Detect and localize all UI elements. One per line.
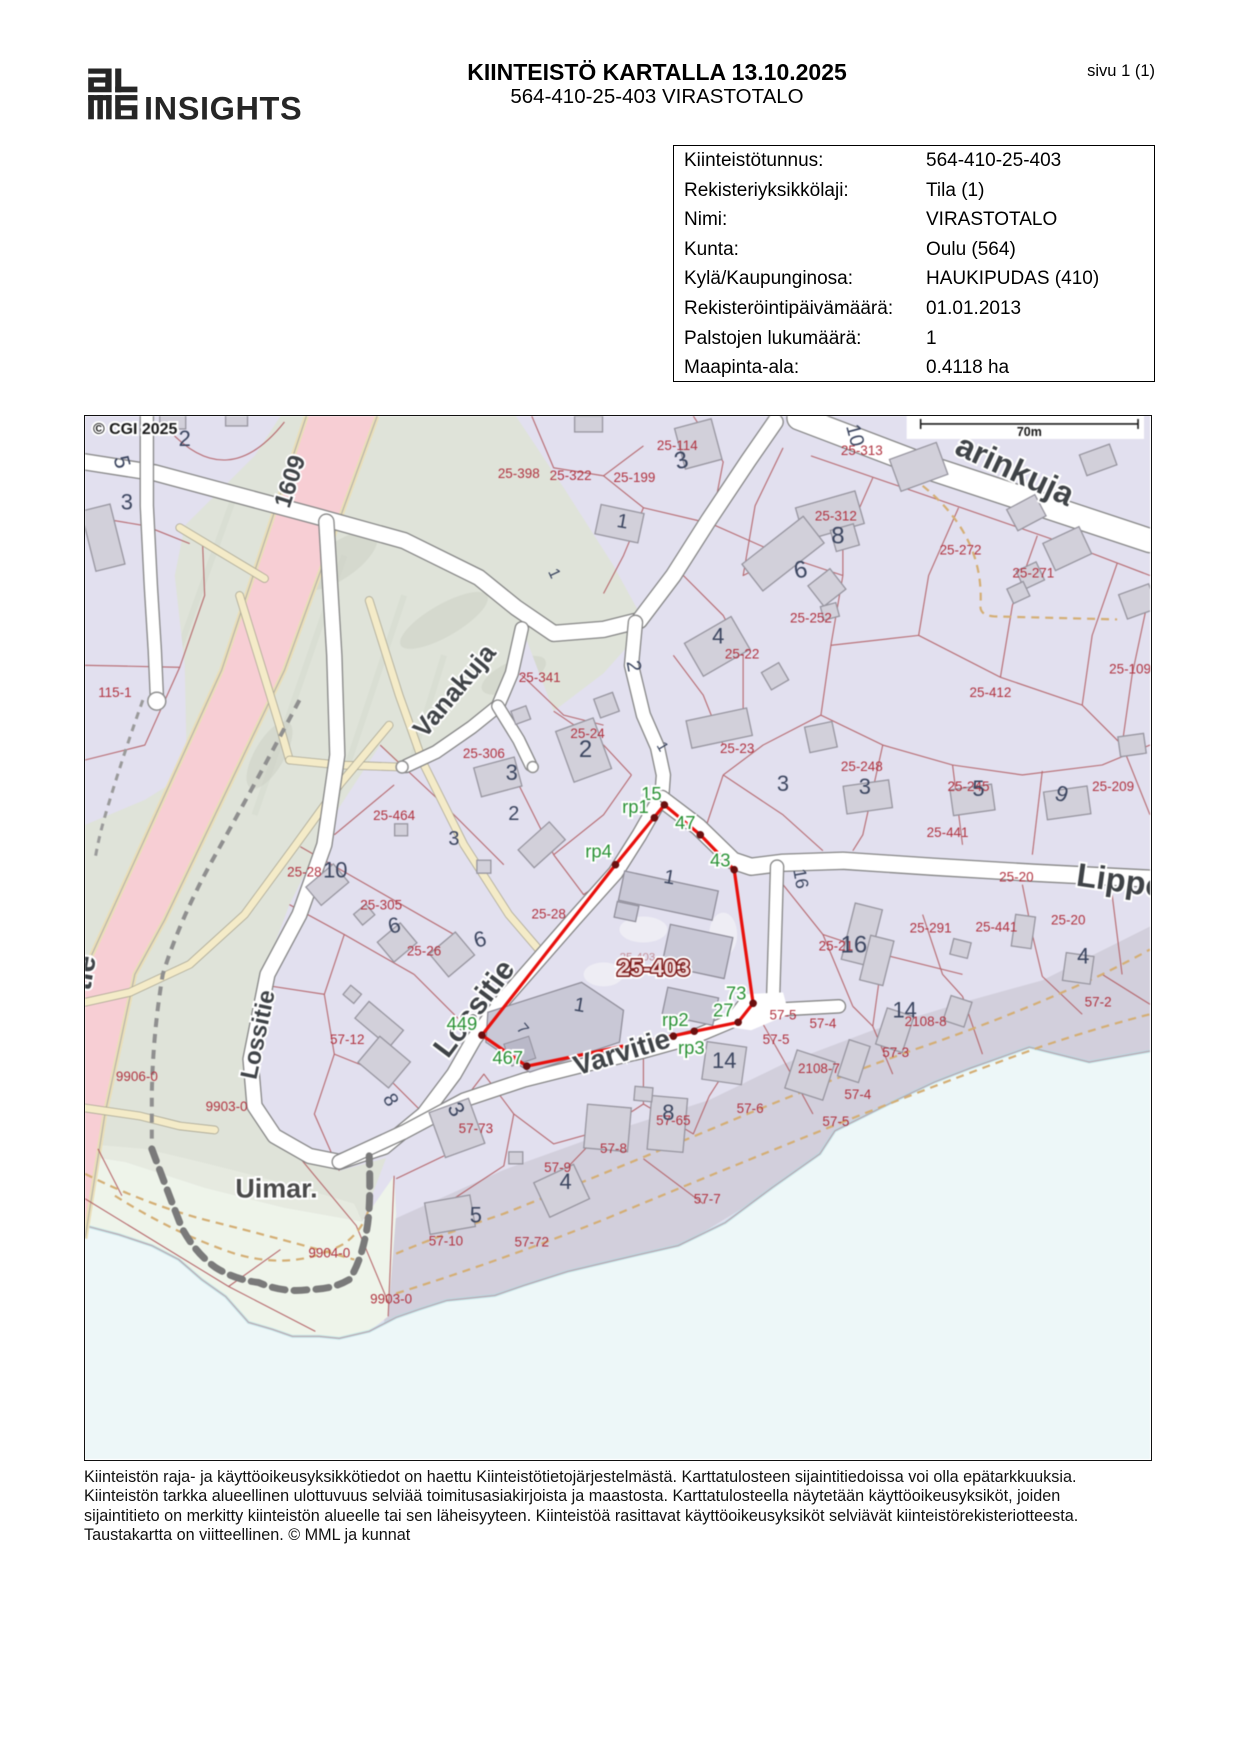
svg-text:25-291: 25-291: [910, 921, 952, 936]
svg-text:25-20: 25-20: [999, 870, 1033, 885]
svg-text:57-4: 57-4: [844, 1087, 871, 1102]
svg-text:2: 2: [579, 736, 592, 763]
svg-text:43: 43: [710, 850, 731, 871]
svg-text:57-8: 57-8: [600, 1141, 627, 1156]
svg-text:25-199: 25-199: [614, 470, 656, 485]
svg-text:10: 10: [323, 858, 347, 883]
svg-text:25-22: 25-22: [725, 646, 759, 661]
svg-text:27: 27: [713, 999, 734, 1020]
svg-text:57-72: 57-72: [515, 1235, 549, 1250]
svg-text:2: 2: [508, 803, 519, 825]
svg-text:115-1: 115-1: [98, 685, 131, 700]
svg-text:9903-0: 9903-0: [370, 1291, 412, 1306]
svg-text:5: 5: [470, 1203, 482, 1228]
svg-text:25-272: 25-272: [940, 543, 982, 558]
svg-text:57-5: 57-5: [822, 1114, 849, 1129]
svg-text:4: 4: [1077, 943, 1089, 968]
svg-text:467: 467: [492, 1047, 523, 1068]
svg-text:25-252: 25-252: [790, 610, 832, 625]
svg-text:3: 3: [777, 771, 789, 796]
svg-text:57-12: 57-12: [330, 1032, 364, 1047]
svg-text:57-3: 57-3: [882, 1045, 909, 1060]
svg-text:57-5: 57-5: [763, 1032, 790, 1047]
svg-text:8: 8: [662, 1100, 674, 1125]
svg-text:25-322: 25-322: [550, 468, 592, 483]
svg-text:57-7: 57-7: [694, 1192, 721, 1207]
svg-text:8: 8: [831, 523, 844, 550]
svg-text:rp1: rp1: [622, 796, 649, 817]
svg-text:57-2: 57-2: [1085, 994, 1112, 1009]
svg-text:4: 4: [712, 623, 724, 648]
svg-text:25-306: 25-306: [463, 746, 505, 761]
svg-text:449: 449: [447, 1013, 478, 1034]
svg-text:14: 14: [712, 1048, 736, 1073]
svg-text:25-464: 25-464: [373, 808, 415, 823]
svg-text:rp2: rp2: [662, 1009, 689, 1030]
svg-text:16: 16: [841, 931, 868, 958]
svg-text:25-412: 25-412: [970, 685, 1012, 700]
svg-text:25-28: 25-28: [531, 907, 565, 922]
svg-text:25-305: 25-305: [360, 898, 402, 913]
svg-text:4: 4: [560, 1169, 572, 1194]
svg-text:57-73: 57-73: [459, 1121, 493, 1136]
svg-text:57-10: 57-10: [429, 1234, 463, 1249]
svg-text:25-271: 25-271: [1012, 566, 1054, 581]
svg-text:25-248: 25-248: [841, 759, 883, 774]
svg-text:25-398: 25-398: [498, 466, 540, 481]
svg-text:25-341: 25-341: [519, 670, 561, 685]
svg-text:25-23: 25-23: [720, 741, 754, 756]
svg-text:3: 3: [448, 828, 459, 850]
svg-text:3: 3: [121, 490, 133, 515]
svg-text:25-312: 25-312: [815, 509, 857, 524]
svg-text:57-6: 57-6: [737, 1101, 764, 1116]
svg-text:57-4: 57-4: [809, 1016, 836, 1031]
svg-text:25-26: 25-26: [407, 943, 441, 958]
svg-text:25-20: 25-20: [1051, 913, 1085, 928]
svg-text:25-209: 25-209: [1092, 779, 1134, 794]
svg-text:© CGI 2025: © CGI 2025: [93, 421, 178, 438]
svg-text:25-28: 25-28: [287, 865, 321, 880]
svg-text:5: 5: [972, 776, 984, 801]
svg-text:14: 14: [892, 997, 916, 1022]
svg-text:25-441: 25-441: [927, 825, 969, 840]
svg-text:rp4: rp4: [585, 841, 612, 862]
svg-text:70m: 70m: [1017, 425, 1042, 439]
svg-text:47: 47: [675, 812, 696, 833]
svg-text:9903-0: 9903-0: [206, 1099, 248, 1114]
svg-text:3: 3: [506, 760, 518, 785]
svg-text:2: 2: [179, 426, 191, 451]
svg-text:25-403: 25-403: [617, 954, 690, 980]
svg-text:25-109: 25-109: [1109, 661, 1150, 676]
svg-text:16: 16: [789, 867, 812, 890]
svg-text:rp3: rp3: [678, 1037, 705, 1058]
svg-text:2108-7: 2108-7: [798, 1061, 840, 1076]
svg-text:9906-0: 9906-0: [116, 1069, 158, 1084]
svg-text:9904-0: 9904-0: [308, 1246, 350, 1261]
svg-text:Uimar.: Uimar.: [235, 1174, 317, 1204]
svg-text:57-5: 57-5: [770, 1007, 797, 1022]
svg-text:3: 3: [859, 774, 871, 799]
svg-text:25-441: 25-441: [975, 920, 1017, 935]
